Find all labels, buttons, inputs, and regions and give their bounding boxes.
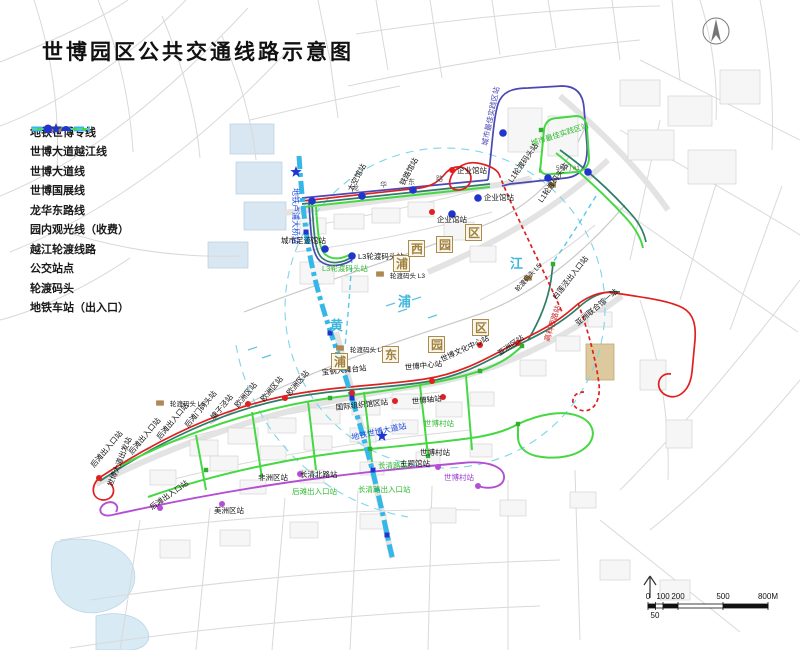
scale-bar-segment — [723, 604, 768, 608]
station-label: 后滩出入口站 — [292, 486, 337, 496]
legend-item-label: 世博大道线 — [30, 163, 85, 179]
ferry-pier-icon — [377, 272, 384, 277]
red-line-stop-marker — [429, 209, 435, 215]
legend-item-label: 园内观光线（收费） — [30, 221, 129, 237]
waterfront-block — [230, 124, 274, 154]
station-label: L3轮渡码头站 — [322, 263, 368, 273]
city-block — [150, 470, 176, 485]
city-block — [556, 336, 580, 351]
purple-line-stop-marker — [475, 483, 481, 489]
river-wave-tick — [386, 303, 395, 306]
city-block — [228, 428, 258, 444]
waterfront-block — [244, 202, 286, 230]
legend-item: 轮渡码头 — [30, 278, 129, 298]
purple-line-stop-marker — [435, 464, 441, 470]
city-block — [160, 540, 190, 558]
city-block — [620, 80, 660, 106]
bus-stop-marker — [409, 186, 417, 194]
region-label: 浦 — [334, 354, 346, 369]
city-block — [470, 444, 492, 457]
river-wave-tick — [398, 309, 407, 312]
city-block — [220, 530, 250, 546]
legend-item: 公交站点 — [30, 259, 129, 279]
region-label: 园 — [431, 338, 443, 352]
green-line-stop-marker — [520, 344, 524, 348]
city-block — [190, 440, 218, 456]
legend-item: 世博国展线 — [30, 181, 129, 201]
city-block — [436, 402, 462, 417]
green-line-stop-marker — [539, 128, 543, 132]
station-label: 华 — [380, 180, 387, 189]
green-line-stop-marker — [551, 262, 555, 266]
city-block — [668, 96, 712, 126]
city-block — [628, 130, 674, 160]
red-line-stop-marker — [449, 167, 455, 173]
legend-item-label: 轮渡码头 — [30, 280, 74, 296]
scale-bar-value: 100 — [656, 592, 670, 601]
city-block — [500, 500, 526, 516]
city-block — [342, 276, 368, 292]
station-label: 长清路出入口站 — [358, 484, 411, 494]
legend-item-label: 世博国展线 — [30, 182, 85, 198]
station-label: 主题馆站 — [400, 458, 430, 468]
scale-bar-segment — [648, 604, 656, 608]
station-label: 世博文化中心站 — [439, 332, 491, 363]
red-line-stop-marker — [245, 401, 251, 407]
legend-item-label: 世博大道越江线 — [30, 143, 107, 159]
station-label: 企业馆站 — [437, 214, 467, 224]
bus-stop-marker — [321, 245, 329, 253]
street — [348, 40, 640, 86]
region-label: 西 — [411, 242, 423, 256]
street — [492, 0, 500, 55]
legend-item-label: 地铁车站（出入口） — [30, 299, 129, 315]
city-block — [520, 360, 546, 376]
metro-line-dot — [385, 533, 390, 538]
city-block — [372, 208, 400, 223]
station-label: 企业馆站 — [457, 165, 487, 175]
river-wave-tick — [248, 347, 257, 350]
station-label: 非洲区站 — [258, 472, 288, 482]
scale-bar-value: 500 — [716, 592, 730, 601]
legend-item-label: 龙华东路线 — [30, 202, 85, 218]
legend-swatch-station-icon — [30, 122, 92, 136]
region-label: 园 — [439, 238, 451, 252]
scale-bar-segment — [663, 604, 678, 608]
red-line-stop-marker — [96, 475, 102, 481]
legend-item: 园内观光线（收费） — [30, 220, 129, 240]
region-label: 区 — [468, 226, 480, 240]
street — [430, 0, 442, 78]
street — [196, 508, 210, 650]
station-label: 龙 — [352, 183, 359, 192]
city-block — [470, 392, 494, 406]
green-line-stop-marker — [368, 447, 372, 451]
street — [90, 560, 560, 600]
legend-list: 地铁世博专线世博大道越江线世博大道线世博国展线龙华东路线园内观光线（收费）越江轮… — [30, 122, 129, 317]
city-block — [570, 492, 596, 508]
station-label: 企业馆站 — [484, 192, 514, 202]
scale-bar-value: 50 — [651, 611, 660, 620]
station-label: 轮渡码头 L6 — [170, 399, 205, 408]
river-wave-tick — [262, 355, 271, 358]
metro-line-dot — [371, 468, 376, 473]
station-label: 世博村站 — [424, 418, 454, 428]
scale-bar-value: 0 — [646, 592, 651, 601]
scale-bar-value: 800M — [758, 592, 778, 601]
bus-stop-marker — [348, 252, 356, 260]
station-label: 东 — [408, 177, 415, 186]
street — [672, 0, 680, 80]
city-block — [720, 70, 760, 104]
metro-line-dot — [304, 230, 309, 235]
map-canvas: 地铁卢浦大桥站城市足迹馆站L3轮渡码头站L3轮渡码头站太空馆站铁路馆站企业馆站企… — [0, 0, 800, 650]
station-label: 世博村站 — [420, 447, 450, 457]
city-block — [666, 420, 692, 448]
waterfront-block — [208, 242, 248, 268]
station-label: 美洲区站 — [214, 505, 244, 515]
legend: 地铁世博专线世博大道越江线世博大道线世博国展线龙华东路线园内观光线（收费）越江轮… — [30, 122, 129, 317]
city-block — [688, 150, 736, 184]
region-label: 浦 — [396, 256, 408, 271]
page-title: 世博园区公共交通线路示意图 — [42, 36, 354, 66]
region-label: 东 — [385, 347, 397, 362]
river-wave-tick — [412, 297, 421, 300]
green-line-stop-marker — [328, 396, 332, 400]
station-label: 世博中心站 — [404, 358, 443, 372]
ferry-pier-icon — [157, 401, 164, 406]
ferry-pier-icon — [337, 346, 344, 351]
city-block — [470, 246, 496, 262]
city-block — [260, 446, 286, 460]
red-line-stop-marker — [282, 395, 288, 401]
street — [272, 498, 285, 650]
city-block — [430, 508, 456, 523]
region-label: 区 — [475, 321, 487, 335]
green-line-stop-marker — [516, 422, 520, 426]
station-label: 世博村站 — [444, 472, 474, 482]
red-line-stop-marker — [349, 390, 355, 396]
city-block — [210, 456, 238, 471]
station-label: 城市足迹馆站 — [281, 235, 326, 245]
green-line-stop-marker — [478, 369, 482, 373]
compass-needle-icon — [711, 19, 721, 42]
map-page: 地铁卢浦大桥站城市足迹馆站L3轮渡码头站L3轮渡码头站太空馆站铁路馆站企业馆站企… — [0, 0, 800, 650]
city-block — [600, 560, 630, 580]
main-road — [96, 296, 622, 484]
landmark-building — [586, 344, 614, 380]
red-line-stop-marker — [392, 398, 398, 404]
bus-stop-marker — [499, 129, 507, 137]
bus-stop-marker — [474, 194, 482, 202]
street — [350, 490, 358, 650]
city-block — [334, 214, 364, 229]
street — [612, 0, 620, 60]
green-line-stop-marker — [204, 468, 208, 472]
city-block — [304, 436, 332, 450]
street — [730, 186, 782, 330]
city-block — [640, 360, 666, 390]
legend-item: 龙华东路线 — [30, 200, 129, 220]
legend-item: 地铁车站（出入口） — [30, 298, 129, 318]
river-wave-tick — [428, 315, 437, 318]
station-label: 城市最佳实践区站 — [479, 85, 501, 146]
metro-line-dot — [350, 396, 355, 401]
bus-stop-marker — [358, 192, 366, 200]
scale-bar-value: 200 — [671, 592, 685, 601]
city-block — [290, 522, 318, 538]
street — [60, 510, 480, 540]
station-label: 轮渡码头 L3 — [390, 271, 425, 280]
legend-item-label: 公交站点 — [30, 260, 74, 276]
street — [250, 86, 400, 120]
station-label: 5号门 #1 — [556, 164, 580, 172]
waterfront-block — [236, 162, 282, 194]
bus-stop-marker — [584, 168, 592, 176]
route-sightseeing-line — [518, 413, 593, 457]
river-name-label: 浦 — [398, 294, 411, 309]
station-label: 路 — [436, 174, 443, 183]
street — [376, 0, 388, 70]
red-line-stop-marker — [429, 378, 435, 384]
legend-item: 越江轮渡线路 — [30, 239, 129, 259]
street — [760, 0, 773, 150]
river-name-label: 江 — [510, 256, 523, 271]
legend-metro-star-icon — [50, 123, 61, 134]
city-block — [408, 202, 434, 217]
legend-item-label: 越江轮渡线路 — [30, 241, 96, 257]
legend-item: 世博大道越江线 — [30, 142, 129, 162]
city-block — [268, 418, 296, 433]
water-area — [51, 539, 135, 612]
legend-item: 世博大道线 — [30, 161, 129, 181]
station-label: 轮渡码头 L4 — [350, 345, 385, 354]
river-name-label: 黄 — [330, 318, 343, 333]
street — [548, 0, 556, 48]
station-label: 长清北路站 — [300, 469, 338, 479]
bus-stop-marker — [308, 197, 316, 205]
street — [650, 380, 800, 530]
